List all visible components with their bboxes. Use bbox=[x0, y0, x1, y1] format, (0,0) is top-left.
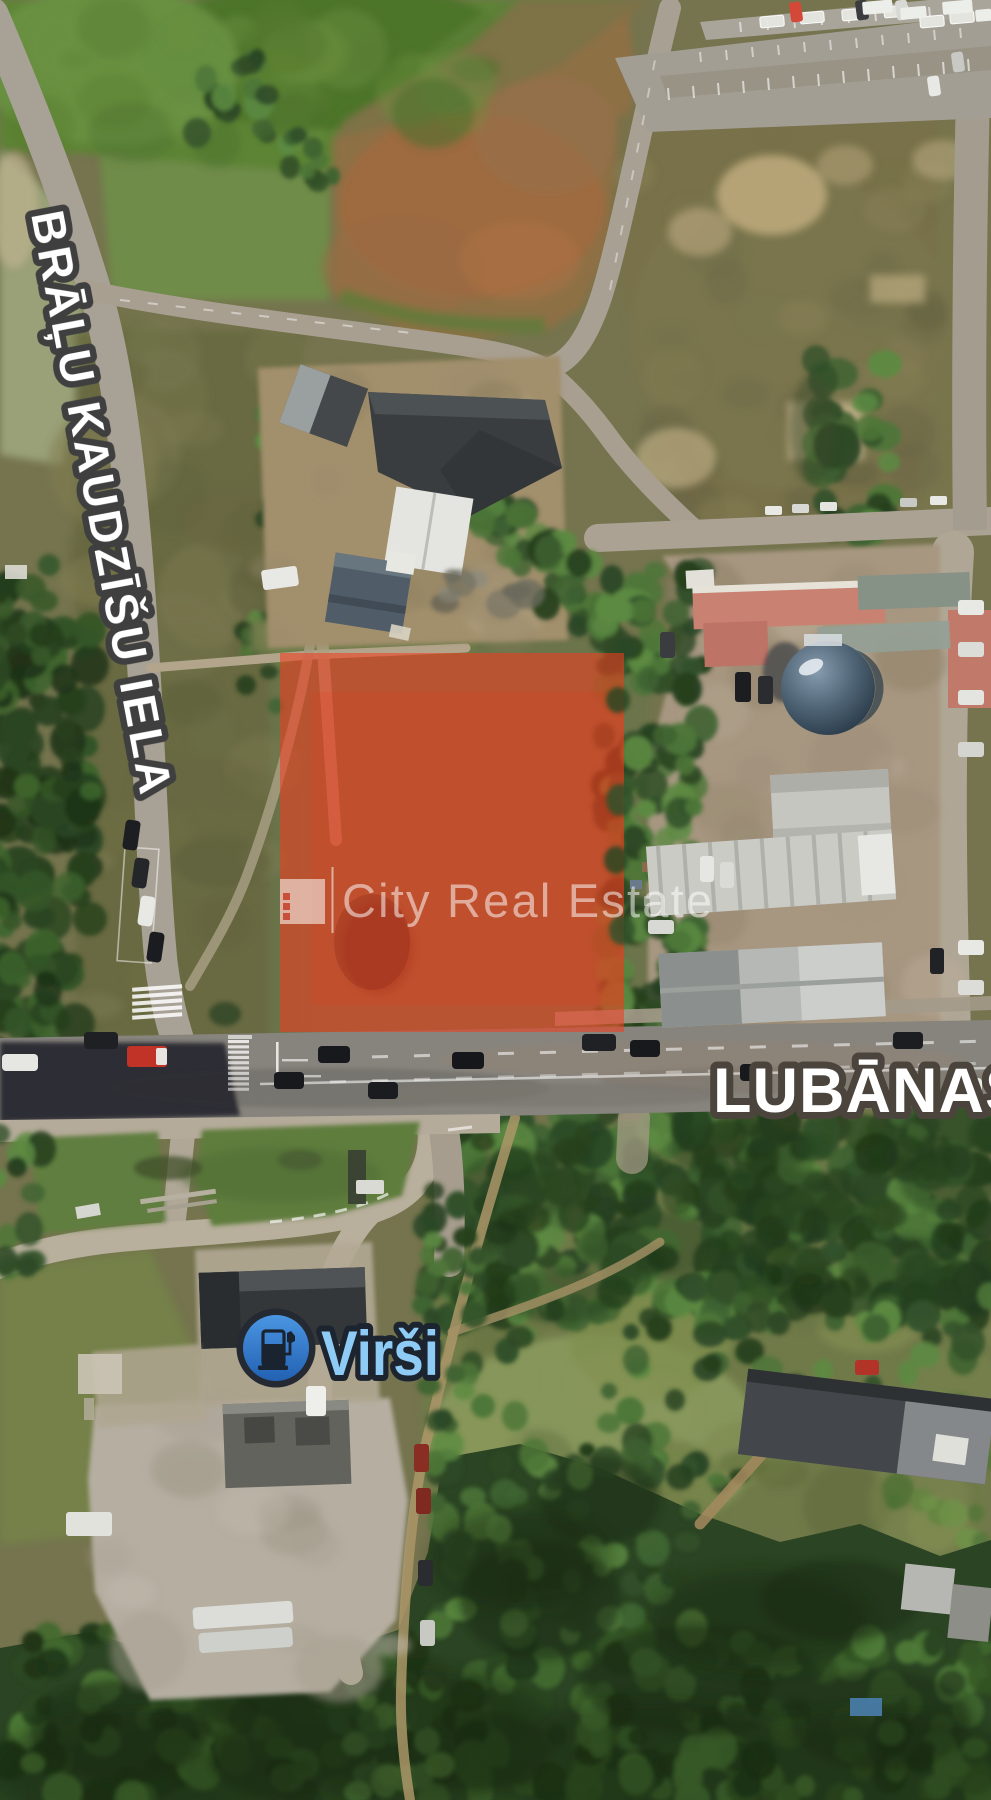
svg-text:City Real Estate: City Real Estate bbox=[342, 874, 714, 927]
svg-text:LUBĀNAS: LUBĀNAS bbox=[713, 1056, 991, 1126]
svg-text:Virši: Virši bbox=[321, 1319, 439, 1389]
